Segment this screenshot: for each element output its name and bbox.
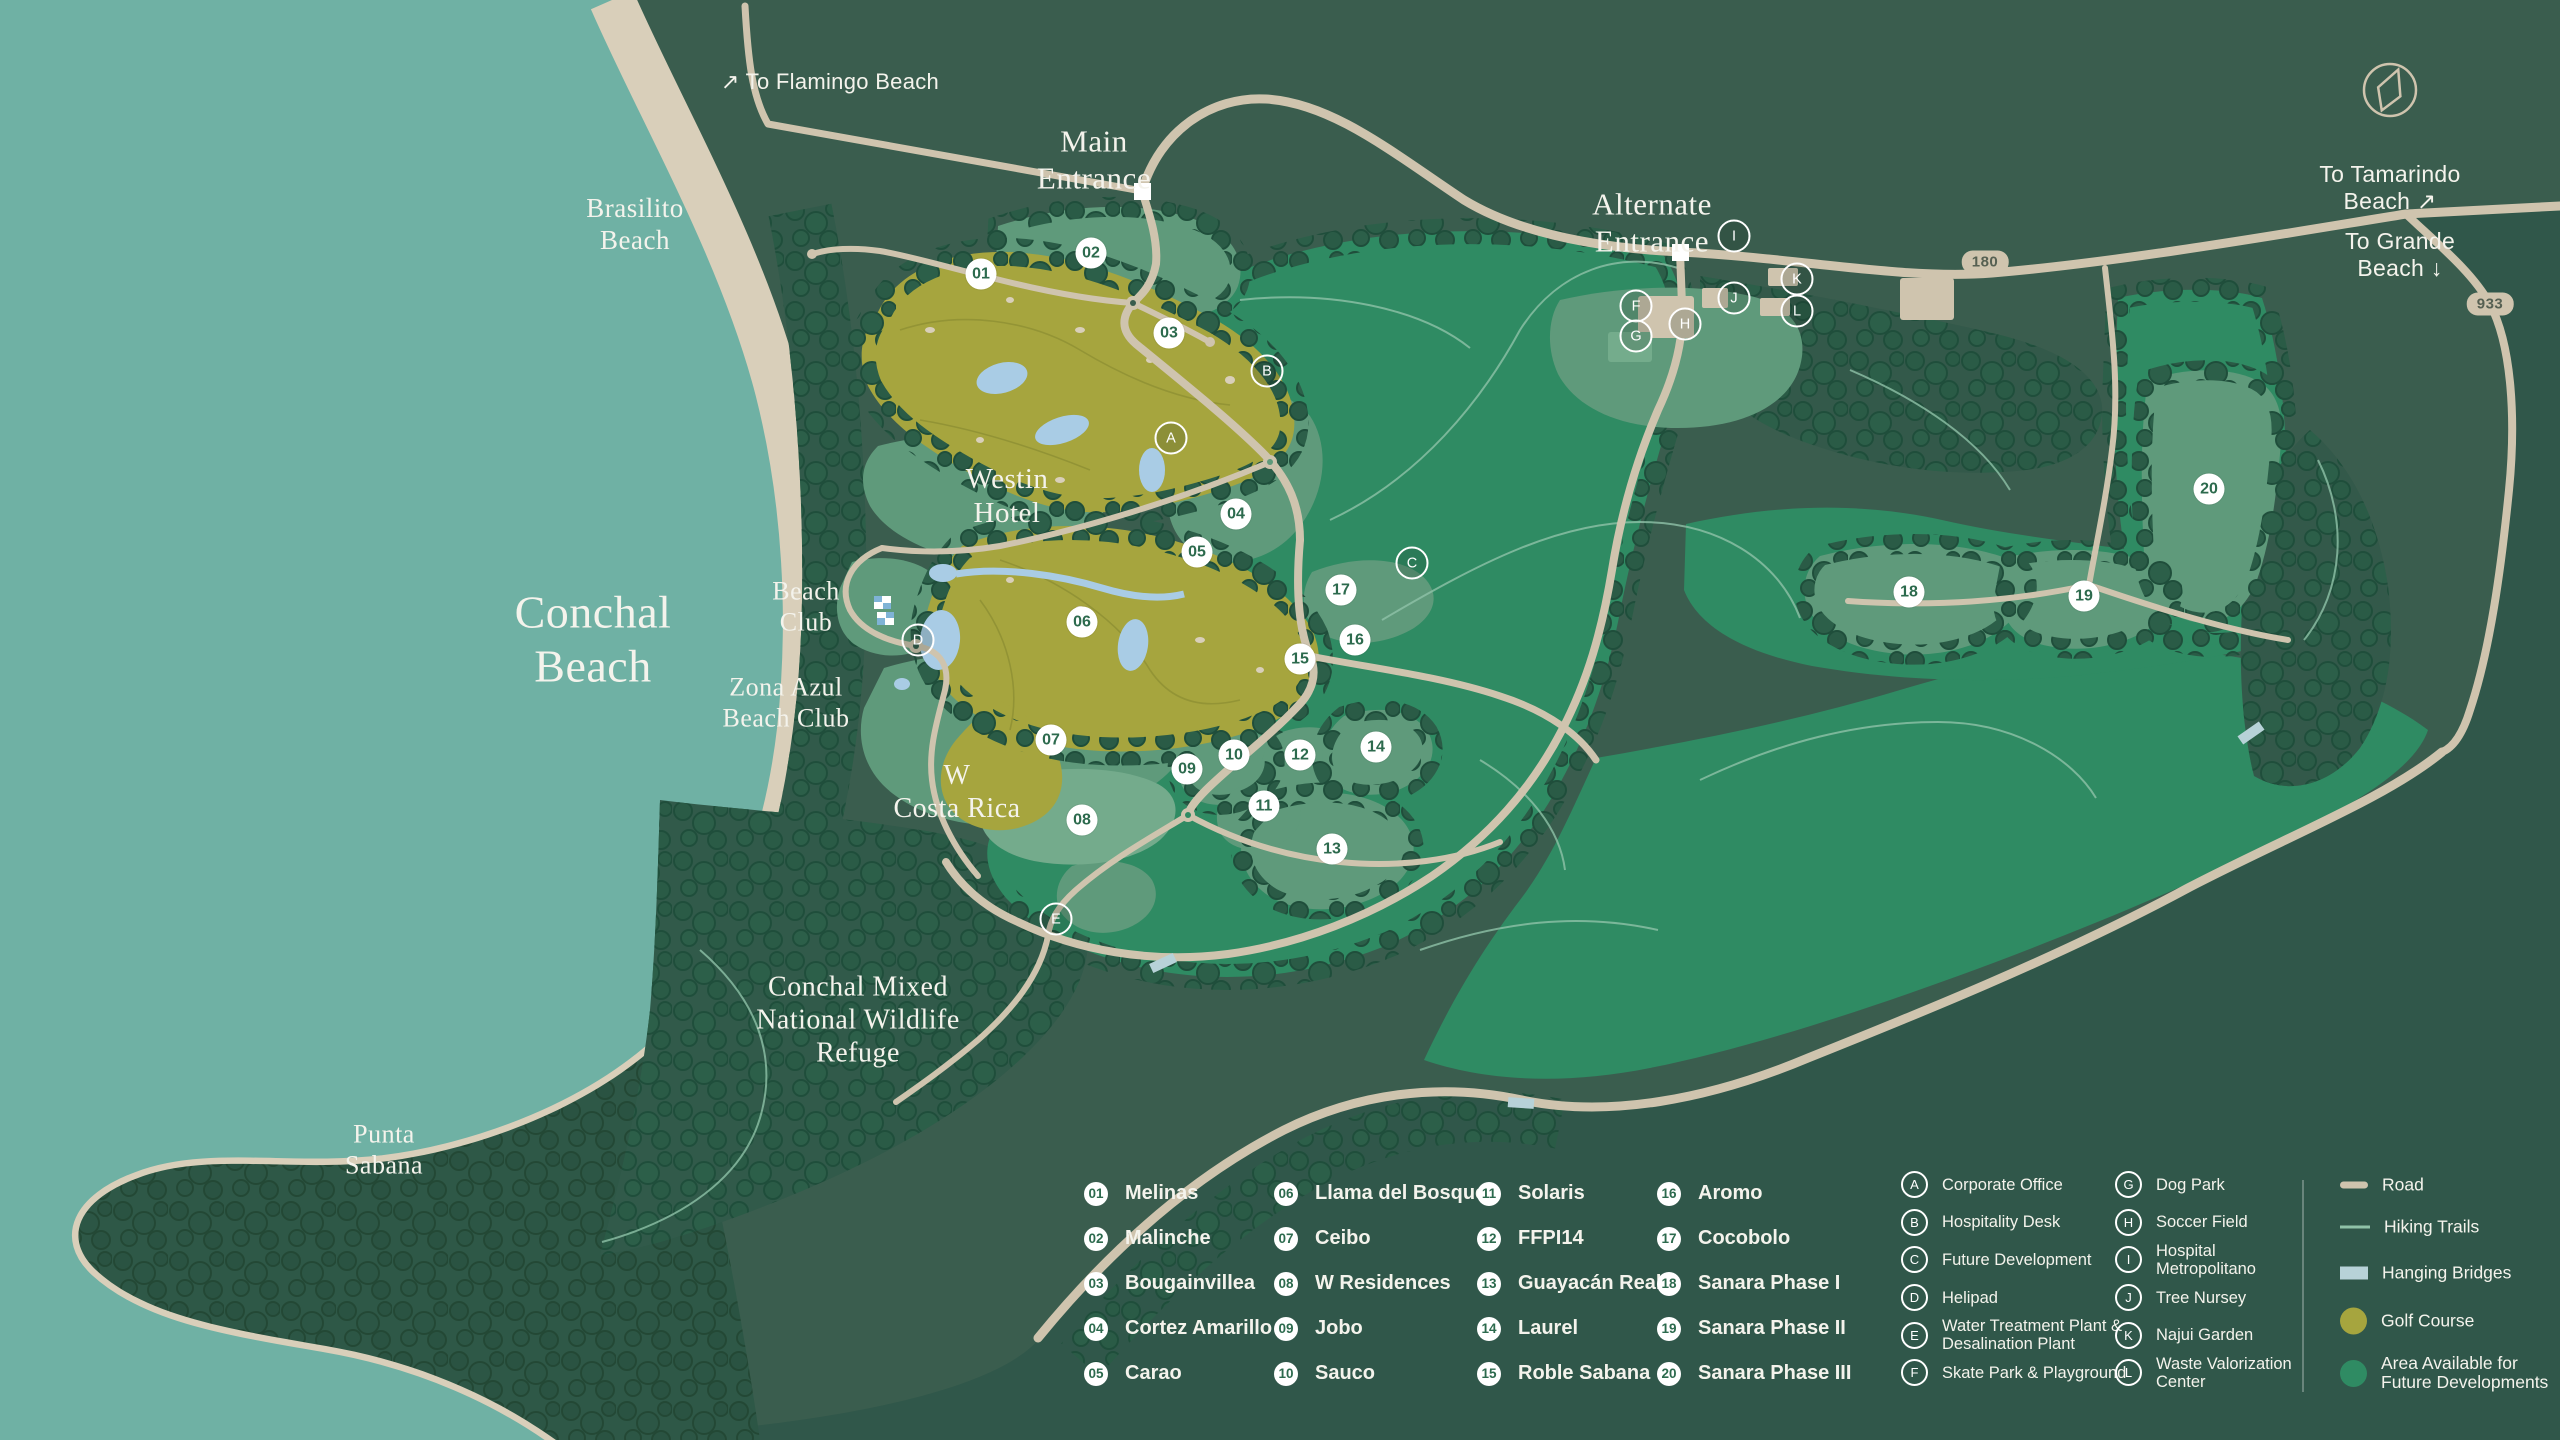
legend-item-number: 07 xyxy=(1274,1227,1298,1251)
legend-item-08: 08W Residences xyxy=(1274,1261,1486,1306)
legend-item-label: Dog Park xyxy=(2156,1176,2225,1194)
legend-key-label: Area Available for Future Developments xyxy=(2381,1354,2548,1392)
legend-item-label: Skate Park & Playground xyxy=(1942,1364,2126,1382)
legend-key-bridge: Hanging Bridges xyxy=(2340,1264,2511,1283)
legend-item-11: 11Solaris xyxy=(1477,1171,1661,1216)
legend-item-letter: F xyxy=(1901,1359,1928,1386)
legend-item-label: Helipad xyxy=(1942,1289,1998,1307)
trail-swatch xyxy=(2340,1226,2370,1229)
legend-item-label: Hospital Metropolitano xyxy=(2156,1242,2256,1278)
legend-item-E: EWater Treatment Plant & Desalination Pl… xyxy=(1901,1316,2126,1354)
legend-item-number: 02 xyxy=(1084,1227,1108,1251)
legend-item-C: CFuture Development xyxy=(1901,1241,2126,1279)
legend-item-label: Sanara Phase III xyxy=(1698,1362,1851,1385)
legend-item-letter: C xyxy=(1901,1246,1928,1273)
legend-key-road: Road xyxy=(2340,1176,2424,1195)
legend-key-trail: Hiking Trails xyxy=(2340,1218,2479,1237)
legend-item-letter: G xyxy=(2115,1171,2142,1198)
legend-item-label: Guayacán Real xyxy=(1518,1272,1661,1295)
legend-item-17: 17Cocobolo xyxy=(1657,1216,1851,1261)
legend-item-label: Soccer Field xyxy=(2156,1213,2248,1231)
legend-item-number: 08 xyxy=(1274,1272,1298,1296)
legend-item-label: Roble Sabana xyxy=(1518,1362,1650,1385)
legend-item-label: Laurel xyxy=(1518,1317,1578,1340)
legend-item-number: 05 xyxy=(1084,1362,1108,1386)
legend-item-label: FFPI14 xyxy=(1518,1227,1584,1250)
legend-numbered-column-4: 16Aromo17Cocobolo18Sanara Phase I19Sanar… xyxy=(1657,1171,1851,1396)
legend-item-K: KNajui Garden xyxy=(2115,1316,2292,1354)
legend-key-label: Road xyxy=(2382,1176,2424,1195)
legend-numbered-column-1: 01Melinas02Malinche03Bougainvillea04Cort… xyxy=(1084,1171,1272,1396)
legend-item-number: 14 xyxy=(1477,1317,1501,1341)
legend-item-15: 15Roble Sabana xyxy=(1477,1351,1661,1396)
legend-item-number: 13 xyxy=(1477,1272,1501,1296)
legend-item-number: 03 xyxy=(1084,1272,1108,1296)
legend-item-letter: J xyxy=(2115,1284,2142,1311)
legend-item-label: Bougainvillea xyxy=(1125,1272,1255,1295)
legend-item-07: 07Ceibo xyxy=(1274,1216,1486,1261)
legend-key-label: Hanging Bridges xyxy=(2382,1264,2511,1283)
legend-item-D: DHelipad xyxy=(1901,1279,2126,1317)
legend-item-03: 03Bougainvillea xyxy=(1084,1261,1272,1306)
legend-item-14: 14Laurel xyxy=(1477,1306,1661,1351)
legend-item-12: 12FFPI14 xyxy=(1477,1216,1661,1261)
legend-item-F: FSkate Park & Playground xyxy=(1901,1354,2126,1392)
legend-item-label: Cocobolo xyxy=(1698,1227,1790,1250)
legend-item-label: Melinas xyxy=(1125,1182,1198,1205)
legend-item-13: 13Guayacán Real xyxy=(1477,1261,1661,1306)
legend-item-B: BHospitality Desk xyxy=(1901,1204,2126,1242)
legend-item-label: Hospitality Desk xyxy=(1942,1213,2060,1231)
legend-item-label: Malinche xyxy=(1125,1227,1211,1250)
legend-item-10: 10Sauco xyxy=(1274,1351,1486,1396)
legend-item-H: HSoccer Field xyxy=(2115,1204,2292,1242)
area-swatch xyxy=(2340,1360,2367,1387)
legend-divider xyxy=(2302,1180,2304,1392)
legend-item-I: IHospital Metropolitano xyxy=(2115,1241,2292,1279)
legend-item-02: 02Malinche xyxy=(1084,1216,1272,1261)
legend-key-golf: Golf Course xyxy=(2340,1308,2474,1335)
legend-item-19: 19Sanara Phase II xyxy=(1657,1306,1851,1351)
golf-swatch xyxy=(2340,1308,2367,1335)
legend-item-letter: K xyxy=(2115,1322,2142,1349)
legend-item-number: 16 xyxy=(1657,1182,1681,1206)
legend-item-label: Future Development xyxy=(1942,1251,2092,1269)
legend-item-number: 06 xyxy=(1274,1182,1298,1206)
legend-item-04: 04Cortez Amarillo xyxy=(1084,1306,1272,1351)
legend-item-number: 12 xyxy=(1477,1227,1501,1251)
legend-item-label: Waste Valorization Center xyxy=(2156,1355,2292,1391)
bridge-swatch xyxy=(2340,1267,2368,1280)
legend-item-L: LWaste Valorization Center xyxy=(2115,1354,2292,1392)
legend-numbered-column-2: 06Llama del Bosque07Ceibo08W Residences0… xyxy=(1274,1171,1486,1396)
legend-item-number: 20 xyxy=(1657,1362,1681,1386)
legend-item-label: Aromo xyxy=(1698,1182,1762,1205)
legend-item-label: Solaris xyxy=(1518,1182,1585,1205)
legend-item-label: Corporate Office xyxy=(1942,1176,2063,1194)
legend-item-01: 01Melinas xyxy=(1084,1171,1272,1216)
legend-item-number: 04 xyxy=(1084,1317,1108,1341)
legend-item-06: 06Llama del Bosque xyxy=(1274,1171,1486,1216)
legend-item-label: Sanara Phase II xyxy=(1698,1317,1846,1340)
legend-item-number: 11 xyxy=(1477,1182,1501,1206)
legend-item-label: Carao xyxy=(1125,1362,1182,1385)
legend-key-label: Hiking Trails xyxy=(2384,1218,2479,1237)
road-swatch xyxy=(2340,1182,2368,1189)
legend-lettered-column-2: GDog ParkHSoccer FieldIHospital Metropol… xyxy=(2115,1166,2292,1392)
resort-map: ↗ To Flamingo BeachBrasilito BeachMain E… xyxy=(0,0,2560,1440)
legend-item-G: GDog Park xyxy=(2115,1166,2292,1204)
legend-item-label: Jobo xyxy=(1315,1317,1363,1340)
legend-key-area: Area Available for Future Developments xyxy=(2340,1354,2548,1392)
legend-item-number: 09 xyxy=(1274,1317,1298,1341)
legend-item-J: JTree Nursey xyxy=(2115,1279,2292,1317)
legend-item-label: Llama del Bosque xyxy=(1315,1182,1486,1205)
legend-item-letter: B xyxy=(1901,1209,1928,1236)
legend-item-letter: H xyxy=(2115,1209,2142,1236)
main-entrance-square xyxy=(1134,183,1151,200)
legend-item-letter: A xyxy=(1901,1171,1928,1198)
legend-item-label: Sauco xyxy=(1315,1362,1375,1385)
alternate-entrance-square xyxy=(1672,244,1689,261)
legend-key-label: Golf Course xyxy=(2381,1312,2474,1331)
legend-item-label: Sanara Phase I xyxy=(1698,1272,1840,1295)
legend-item-16: 16Aromo xyxy=(1657,1171,1851,1216)
legend-item-18: 18Sanara Phase I xyxy=(1657,1261,1851,1306)
legend-item-A: ACorporate Office xyxy=(1901,1166,2126,1204)
legend-lettered-column-1: ACorporate OfficeBHospitality DeskCFutur… xyxy=(1901,1166,2126,1392)
legend-item-20: 20Sanara Phase III xyxy=(1657,1351,1851,1396)
legend-item-number: 10 xyxy=(1274,1362,1298,1386)
legend-item-label: Najui Garden xyxy=(2156,1326,2253,1344)
legend-item-label: W Residences xyxy=(1315,1272,1451,1295)
legend-numbered-column-3: 11Solaris12FFPI1413Guayacán Real14Laurel… xyxy=(1477,1171,1661,1396)
legend-item-number: 15 xyxy=(1477,1362,1501,1386)
legend-item-label: Water Treatment Plant & Desalination Pla… xyxy=(1942,1317,2122,1353)
legend-item-letter: L xyxy=(2115,1359,2142,1386)
legend-item-05: 05Carao xyxy=(1084,1351,1272,1396)
legend-item-letter: I xyxy=(2115,1246,2142,1273)
legend-item-letter: E xyxy=(1901,1322,1928,1349)
legend-item-09: 09Jobo xyxy=(1274,1306,1486,1351)
legend-item-number: 17 xyxy=(1657,1227,1681,1251)
legend-item-number: 19 xyxy=(1657,1317,1681,1341)
legend-item-label: Ceibo xyxy=(1315,1227,1371,1250)
legend-item-letter: D xyxy=(1901,1284,1928,1311)
legend-item-number: 01 xyxy=(1084,1182,1108,1206)
legend-item-label: Tree Nursey xyxy=(2156,1289,2246,1307)
legend-item-number: 18 xyxy=(1657,1272,1681,1296)
legend-item-label: Cortez Amarillo xyxy=(1125,1317,1272,1340)
